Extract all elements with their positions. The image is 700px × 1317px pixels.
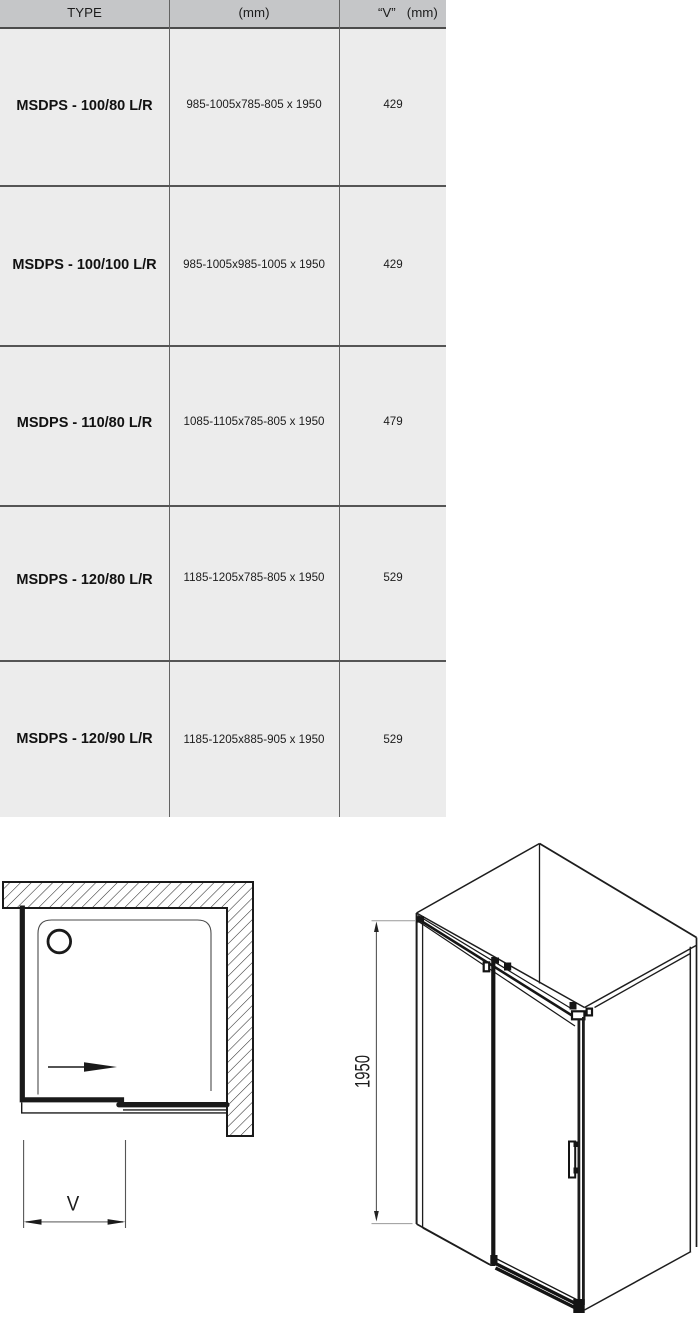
svg-text:1950: 1950 [350, 1055, 374, 1088]
svg-text:V: V [67, 1193, 80, 1216]
